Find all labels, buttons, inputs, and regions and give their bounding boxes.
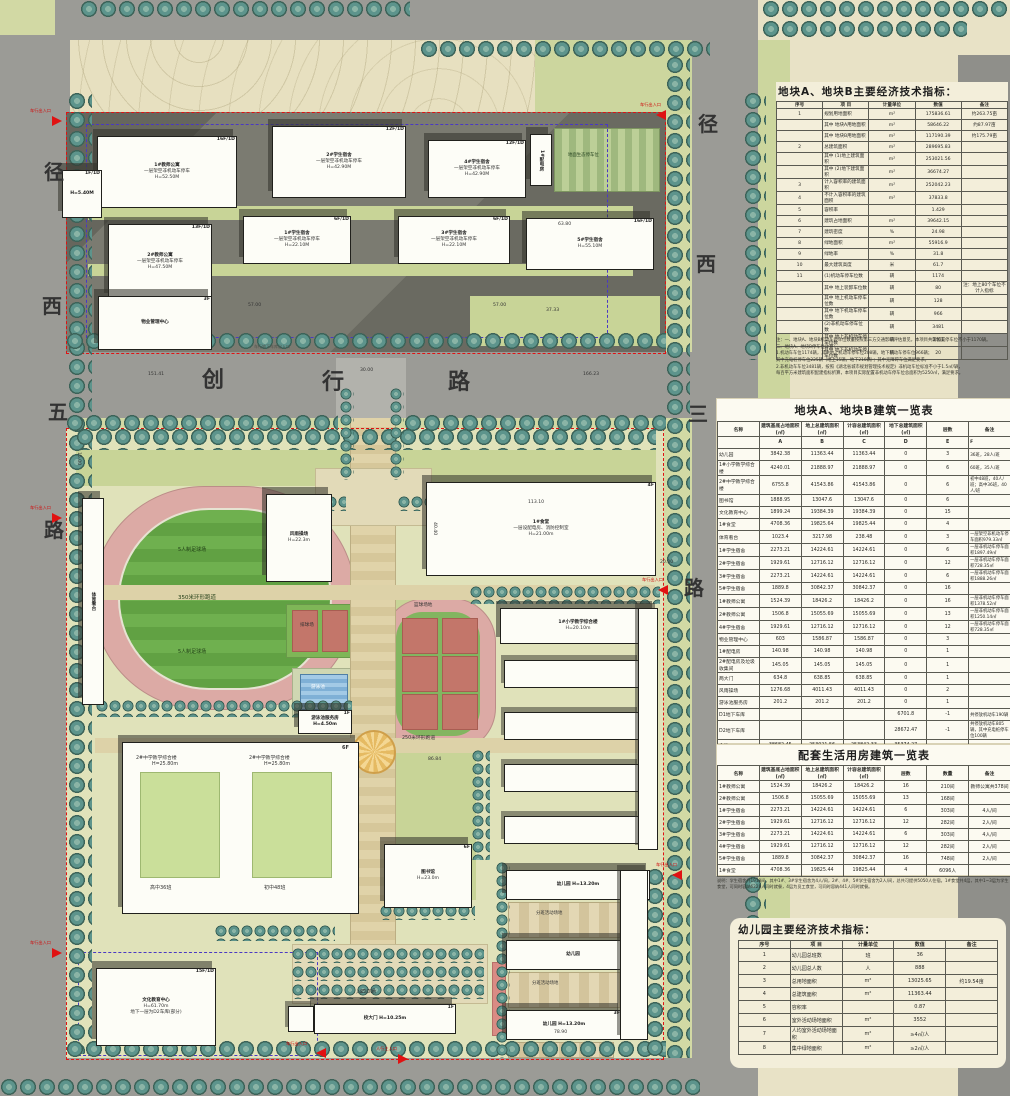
table-row: ABCDEF xyxy=(718,437,1010,449)
map-label: 创 xyxy=(202,362,224,394)
vehicle-entrance-arrow xyxy=(52,513,62,523)
table-cell: 14224.61 xyxy=(801,544,843,557)
map-label: 初中48班 xyxy=(264,884,285,891)
table-cell xyxy=(777,166,823,179)
table-row: 8集中绿地面积m²≥2㎡/人 xyxy=(739,1042,998,1055)
entrance-arrow-label: 车行出入口 xyxy=(30,940,51,946)
table-cell: 30842.37 xyxy=(843,583,885,595)
support-list-table: 名称建筑基底占地面积(㎡)地上总建筑面积(㎡)计容总建筑面积(㎡)层数数量备注1… xyxy=(717,765,1010,877)
table-row: 4不计入容积率的建筑面积m²37833.8 xyxy=(777,192,1008,205)
column-header: 数值 xyxy=(915,102,961,109)
table-cell: 班 xyxy=(842,949,894,962)
building: 5F1#小学教学综合楼H=20.10m xyxy=(500,608,656,644)
column-header: 序号 xyxy=(739,941,791,949)
table-cell xyxy=(801,709,843,721)
table-cell xyxy=(969,865,1010,877)
table-cell: 1 xyxy=(777,109,823,120)
table-cell: 1929.61 xyxy=(759,841,801,853)
table-cell: 米 xyxy=(869,260,915,271)
table-cell xyxy=(718,437,760,449)
table-cell: 252042.23 xyxy=(915,179,961,192)
table-cell: 12716.12 xyxy=(843,817,885,829)
table-cell: 其中 地上装卸车位数 xyxy=(823,282,869,295)
table-cell: 210间 xyxy=(927,781,969,793)
entrance-arrow-label: 人行主入口 xyxy=(376,1046,397,1052)
table-cell: 289695.83 xyxy=(915,142,961,153)
table-cell: 其中 地上机动车停车位数 xyxy=(823,295,869,308)
table-cell: 两大门 xyxy=(718,673,760,685)
table-cell: 集中绿地面积 xyxy=(790,1042,842,1055)
table-cell: 一层架空非机动车停车面积979.33㎡ xyxy=(969,531,1010,544)
table-cell: 其中 (2)地下建筑面积 xyxy=(823,166,869,179)
table-cell: 其中 地块B用地面积 xyxy=(823,131,869,142)
table-cell: 4708.36 xyxy=(759,519,801,531)
table-row: 游泳池服务房201.2201.2201.201 xyxy=(718,697,1010,709)
table-cell: 638.85 xyxy=(801,673,843,685)
table-row: 6建筑占地面积m²39642.15 xyxy=(777,216,1008,227)
table-row: 2#配电房及垃圾收集间145.05145.05145.0501 xyxy=(718,658,1010,673)
table-cell: 11 xyxy=(777,271,823,282)
table-cell: 其中 地块A用地面积 xyxy=(823,120,869,131)
table-cell: 4240.01 xyxy=(759,461,801,476)
west-road-jingxi-5 xyxy=(0,35,70,1096)
dimension-label: 15.00 xyxy=(76,452,81,465)
table-cell: 1#配电房 xyxy=(718,646,760,658)
building: 16F/1D1#教师公寓一层架空非机动车停车H=52.50M xyxy=(97,136,237,208)
table-row: 1#食堂4708.3619825.6419825.4404 xyxy=(718,519,1010,531)
table-cell: 140.98 xyxy=(843,646,885,658)
table-cell: 145.05 xyxy=(801,658,843,673)
table-row: 1#学生宿舍2273.2114224.6114224.6106一层非机动车停车面… xyxy=(718,544,1010,557)
table-row: 物业管理中心6031586.871586.8703 xyxy=(718,634,1010,646)
table-cell: 13047.6 xyxy=(843,495,885,507)
data-table: 序号项 目计量单位数值备注1幼儿园总班数班362幼儿园总人数人8883总用地面积… xyxy=(738,940,998,1055)
tree-row xyxy=(666,56,690,1058)
table-cell: 6096人 xyxy=(927,865,969,877)
table-cell xyxy=(777,131,823,142)
table-cell: 2#中学教学综合楼 xyxy=(718,476,760,495)
table-cell: 4 xyxy=(739,988,791,1001)
table-cell xyxy=(946,1027,998,1042)
table-cell: 19825.44 xyxy=(843,519,885,531)
basketball-court xyxy=(442,656,478,692)
table-cell: 11363.44 xyxy=(843,449,885,461)
table-cell: 0 xyxy=(885,544,927,557)
table-cell: D xyxy=(885,437,927,449)
table-cell xyxy=(961,216,1007,227)
table-cell: 体育看台 xyxy=(718,531,760,544)
table-cell: 辆 xyxy=(869,295,915,308)
table-cell: 8 xyxy=(777,238,823,249)
table-cell: 16 xyxy=(927,595,969,608)
building-list-table: 名称建筑基底占地面积(㎡)地上总建筑面积(㎡)计容总建筑面积(㎡)地下总建筑面积… xyxy=(717,421,1010,752)
table-cell: 36674.27 xyxy=(915,166,961,179)
table-cell xyxy=(961,153,1007,166)
table-cell xyxy=(777,295,823,308)
map-label: 地面生态停车位 xyxy=(568,152,599,158)
table-cell: 12 xyxy=(927,557,969,570)
table-cell: 13 xyxy=(927,608,969,621)
table-cell: 室外活动场地面积 xyxy=(790,1014,842,1027)
table-cell: 0 xyxy=(885,461,927,476)
column-header: 计容总建筑面积(㎡) xyxy=(843,766,885,781)
entrance-arrow-label: 车行出入口 xyxy=(640,102,661,108)
building: 体育看台 xyxy=(82,498,104,705)
vehicle-entrance-arrow xyxy=(52,948,62,958)
table-cell: 0 xyxy=(885,673,927,685)
dimension-label: 85.00 xyxy=(360,990,373,995)
column-header: 地下总建筑面积(㎡) xyxy=(885,422,927,437)
table-cell: 1276.68 xyxy=(759,685,801,697)
table-cell: 14224.61 xyxy=(843,570,885,583)
table-cell: 12 xyxy=(927,621,969,634)
table-cell: 1 xyxy=(739,949,791,962)
table-cell: 1586.87 xyxy=(801,634,843,646)
table-cell: 634.8 xyxy=(759,673,801,685)
table-cell xyxy=(969,583,1010,595)
table-cell: A xyxy=(759,437,801,449)
table-cell: 16 xyxy=(885,781,927,793)
building-label: H=20.10m xyxy=(566,626,591,632)
table-row: 11(1)机动车停车位数辆1174 xyxy=(777,271,1008,282)
map-label: 350米环形跑道 xyxy=(178,593,216,601)
building: 16F/1D5#学生宿舍H=55.10M xyxy=(526,218,654,270)
table-cell: 145.05 xyxy=(759,658,801,673)
table-cell: 1.429 xyxy=(915,205,961,216)
table-cell: 辆 xyxy=(869,321,915,334)
column-header: 地上总建筑面积(㎡) xyxy=(801,766,843,781)
table-row: 序号项 目计量单位数值备注 xyxy=(777,102,1008,109)
table-row: 序号项 目计量单位数值备注 xyxy=(739,941,998,949)
table-cell: 0 xyxy=(885,476,927,495)
entrance-arrow-label: 车行出入口 xyxy=(30,108,51,114)
map-label: 游泳池 xyxy=(311,684,325,690)
table-row: D1地下车库6701.8-1共停放机动车190辆 xyxy=(718,709,1010,721)
tree-row xyxy=(215,925,335,941)
pedestrian-entrance-arrow xyxy=(398,1054,408,1064)
table-cell: 30842.37 xyxy=(843,853,885,865)
table-row: 4#学生宿舍1929.6112716.1212716.12012一层非机动车停车… xyxy=(718,621,1010,634)
table-cell: 145.05 xyxy=(843,658,885,673)
building-label: H=5.40M xyxy=(70,191,94,197)
entrance-arrow-label: 车行出入口 xyxy=(642,577,663,583)
table-cell xyxy=(946,1042,998,1055)
table-cell xyxy=(969,507,1010,519)
table-cell: 6 xyxy=(927,461,969,476)
map-label: 径 xyxy=(44,156,64,185)
table-cell: 14224.61 xyxy=(843,829,885,841)
building-floors-tag: 6F/1D xyxy=(334,217,349,223)
table-row: 3总用地面积m²13025.65约19.54亩 xyxy=(739,975,998,988)
table-cell: F xyxy=(969,437,1010,449)
table-cell: 2#学生宿舍 xyxy=(718,557,760,570)
table-cell: 13047.6 xyxy=(801,495,843,507)
table-cell: 1#食堂 xyxy=(718,519,760,531)
table-row: 其中 (2)地下建筑面积m²36674.27 xyxy=(777,166,1008,179)
table-cell: 其中 地下机动车停车位数 xyxy=(823,308,869,321)
table-cell xyxy=(961,227,1007,238)
table-row: 名称建筑基底占地面积(㎡)地上总建筑面积(㎡)计容总建筑面积(㎡)层数数量备注 xyxy=(718,766,1010,781)
table-row: (2)非机动车停车位数辆3481 xyxy=(777,321,1008,334)
column-header: 建筑基底占地面积(㎡) xyxy=(759,422,801,437)
kindergarten-table: 序号项 目计量单位数值备注1幼儿园总班数班362幼儿园总人数人8883总用地面积… xyxy=(738,940,998,1055)
building xyxy=(504,712,640,740)
table-cell: 绿地率 xyxy=(823,249,869,260)
table-row: 2总建筑面积m²289695.83 xyxy=(777,142,1008,153)
tree-row xyxy=(340,388,354,480)
table-row: 1#配电房140.98140.98140.9801 xyxy=(718,646,1010,658)
tree-row xyxy=(472,750,490,860)
table-cell: 140.98 xyxy=(759,646,801,658)
table-cell: 最大建筑高度 xyxy=(823,260,869,271)
table-cell: 总建筑面积 xyxy=(790,988,842,1001)
table-cell: 5 xyxy=(739,1001,791,1014)
vehicle-entrance-arrow xyxy=(52,116,62,126)
table-cell: 2 xyxy=(739,962,791,975)
table-cell: 规划用地面积 xyxy=(823,109,869,120)
building-label: H=23.0m xyxy=(417,876,439,882)
table-cell: 21888.97 xyxy=(843,461,885,476)
tree-row xyxy=(762,20,967,40)
map-label: H=25.80m xyxy=(264,762,290,767)
building-floors-tag: 3F xyxy=(204,297,210,303)
table-cell: m² xyxy=(869,192,915,205)
table-cell: 一层非机动车停车面积1250.14㎡ xyxy=(969,608,1010,621)
table-cell: 1#小学教学综合楼 xyxy=(718,461,760,476)
table-cell: 140.98 xyxy=(801,646,843,658)
table-cell: 282间 xyxy=(927,841,969,853)
entrance-arrow-label: 车行出入口 xyxy=(30,505,51,511)
kindergarten-panel: 幼儿园主要经济技术指标： 序号项 目计量单位数值备注1幼儿园总班数班362幼儿园… xyxy=(730,918,1006,1068)
building: 6F图书馆H=23.0m xyxy=(384,844,472,908)
table-row: 1#教师公寓1524.3918426.218426.216210间教师公寓共37… xyxy=(718,781,1010,793)
table-cell: 201.2 xyxy=(759,697,801,709)
table-row: 名称建筑基底占地面积(㎡)地上总建筑面积(㎡)计容总建筑面积(㎡)地下总建筑面积… xyxy=(718,422,1010,437)
table-cell: (1)机动车停车位数 xyxy=(823,271,869,282)
table-row: 3#学生宿舍2273.2114224.6114224.6106一层非机动车停车面… xyxy=(718,570,1010,583)
table-cell: 2#教师公寓 xyxy=(718,793,760,805)
table-cell: 3552 xyxy=(894,1014,946,1027)
table-cell: 其中 (1)地上建筑面积 xyxy=(823,153,869,166)
table-cell: 风雨操场 xyxy=(718,685,760,697)
table-cell: 一层非机动车停车面积1888.26㎡ xyxy=(969,570,1010,583)
table-cell: % xyxy=(869,249,915,260)
building: 风雨操场H=22.3m xyxy=(266,494,332,582)
table-cell: 0 xyxy=(885,685,927,697)
table-cell: 748间 xyxy=(927,853,969,865)
table-cell: 0 xyxy=(885,570,927,583)
table-cell: 4 xyxy=(927,519,969,531)
table-cell: 4人/间 xyxy=(969,829,1010,841)
table-cell: 201.2 xyxy=(801,697,843,709)
table-cell: 16 xyxy=(927,583,969,595)
table-cell: m² xyxy=(869,109,915,120)
building-floors-tag: 1F xyxy=(344,711,350,717)
table-row: 2幼儿园总人数人888 xyxy=(739,962,998,975)
table-cell: m² xyxy=(869,120,915,131)
map-label: 250米环形跑道 xyxy=(402,734,435,741)
building: 13F/1D2#教师公寓一层架空非机动车停车H=47.50M xyxy=(108,224,212,300)
table-cell xyxy=(759,709,801,721)
column-header: 序号 xyxy=(777,102,823,109)
table-cell: 幼儿园 xyxy=(718,449,760,461)
column-header: 名称 xyxy=(718,422,760,437)
map-label: 五 xyxy=(48,396,68,425)
table-cell: 1889.8 xyxy=(759,583,801,595)
table-cell: 建筑占地面积 xyxy=(823,216,869,227)
table-cell: 6701.8 xyxy=(885,709,927,721)
table-cell: 28672.47 xyxy=(885,721,927,740)
table-cell: 容积率 xyxy=(790,1001,842,1014)
map-label: 西 xyxy=(42,290,62,319)
building-label: H=21.00m xyxy=(529,532,554,538)
table-row: 其中 地块A用地面积m²58646.22约87.97亩 xyxy=(777,120,1008,131)
table-cell: 辆 xyxy=(869,282,915,295)
column-header: 计量单位 xyxy=(842,941,894,949)
table-cell xyxy=(777,153,823,166)
building-label: 1#配电房 xyxy=(538,150,544,171)
table-cell: 0 xyxy=(885,697,927,709)
table-cell xyxy=(777,120,823,131)
table-cell: 15055.69 xyxy=(843,793,885,805)
table-cell: 总建筑面积 xyxy=(823,142,869,153)
map-label: 2#中学教学综合楼 xyxy=(136,754,177,761)
table-cell: 18426.2 xyxy=(801,595,843,608)
table-cell: 37833.8 xyxy=(915,192,961,205)
table-cell: 638.85 xyxy=(843,673,885,685)
table-cell: 1506.8 xyxy=(759,608,801,621)
table-cell: 4#学生宿舍 xyxy=(718,621,760,634)
building: 12F/1D4#学生宿舍一层架空非机动车停车H=42.90M xyxy=(428,140,526,198)
table-cell xyxy=(969,685,1010,697)
table-cell xyxy=(961,192,1007,205)
building-label: 游泳池服务房 H=4.50m xyxy=(299,716,351,728)
table-row: D2地下车库28672.47-1共停放机动车805辆，其中充电桩停车位100辆 xyxy=(718,721,1010,740)
table-cell xyxy=(961,238,1007,249)
table-cell xyxy=(946,1001,998,1014)
map-label: 5人制足球场 xyxy=(178,648,206,655)
table-row: 1#小学教学综合楼4240.0121888.9721888.970660班，35… xyxy=(718,461,1010,476)
table-cell: m² xyxy=(869,238,915,249)
building xyxy=(504,816,640,844)
table-cell: m² xyxy=(842,1027,894,1042)
table-cell xyxy=(777,282,823,295)
table-cell: 58646.22 xyxy=(915,120,961,131)
table-cell: 10 xyxy=(777,260,823,271)
table-cell: 238.48 xyxy=(843,531,885,544)
table-row: 其中 地下机动车停车位数辆966 xyxy=(777,308,1008,321)
column-header: 数值 xyxy=(894,941,946,949)
table-cell: -1 xyxy=(927,721,969,740)
table-cell: 14224.61 xyxy=(843,544,885,557)
table-cell: 文化教育中心 xyxy=(718,507,760,519)
table-cell: 辆 xyxy=(869,308,915,321)
table-row: 2#学生宿舍1929.6112716.1212716.1212282间2人/间 xyxy=(718,817,1010,829)
table-cell xyxy=(946,1014,998,1027)
dimension-label: 40.40 xyxy=(432,522,437,535)
tree-row xyxy=(292,966,484,981)
table-cell xyxy=(946,988,998,1001)
table-cell: 30842.37 xyxy=(801,853,843,865)
building-label: H=22.3m xyxy=(288,538,310,544)
table-cell: 1#食堂 xyxy=(718,865,760,877)
table-cell: m² xyxy=(869,216,915,227)
table-cell: 0 xyxy=(885,658,927,673)
table-cell: 幼儿园总人数 xyxy=(790,962,842,975)
table-cell: 2273.21 xyxy=(759,805,801,817)
building-label: 幼儿园 H=13.20m xyxy=(557,882,599,888)
table-cell: 0 xyxy=(885,557,927,570)
table-cell: 13 xyxy=(885,793,927,805)
basketball-court xyxy=(402,618,438,654)
table-cell: 3 xyxy=(927,634,969,646)
table-cell: 603 xyxy=(759,634,801,646)
table-cell: 3#学生宿舍 xyxy=(718,829,760,841)
table-cell: 888 xyxy=(894,962,946,975)
building-label: H=42.90M xyxy=(465,172,489,178)
building-label: 校大门 H=10.25m xyxy=(364,1016,406,1022)
table-cell: 1506.8 xyxy=(759,793,801,805)
map-label: 5人制足球场 xyxy=(178,546,206,553)
table-row: 风雨操场1276.684011.434011.4302 xyxy=(718,685,1010,697)
basketball-court xyxy=(402,694,438,730)
table-cell: ≥2㎡/人 xyxy=(894,1042,946,1055)
building-label: H=42.90M xyxy=(327,165,351,171)
column-header: 备注 xyxy=(969,766,1010,781)
table-cell: 2人/间 xyxy=(969,841,1010,853)
table-row: 10最大建筑高度米61.7 xyxy=(777,260,1008,271)
column-header: 计容总建筑面积(㎡) xyxy=(843,422,885,437)
dimension-label: 57.00 xyxy=(493,303,506,308)
table-cell: 168间 xyxy=(927,793,969,805)
table-cell: 5 xyxy=(777,205,823,216)
indicators-panel: 地块A、地块B主要经济技术指标： 序号项 目计量单位数值备注1规划用地面积m²1… xyxy=(776,82,1008,334)
table-cell: 0 xyxy=(885,583,927,595)
table-row: 幼儿园3842.3811363.4411363.440336班，28人/班 xyxy=(718,449,1010,461)
table-cell: 4#学生宿舍 xyxy=(718,841,760,853)
table-cell: 7 xyxy=(777,227,823,238)
table-cell: 13025.65 xyxy=(894,975,946,988)
dimension-label: 86.84 xyxy=(428,757,441,762)
table-cell xyxy=(969,646,1010,658)
table-cell: 一层非机动车停车面积728.35㎡ xyxy=(969,621,1010,634)
column-header: 建筑基底占地面积(㎡) xyxy=(759,766,801,781)
table-cell: 3 xyxy=(739,975,791,988)
table-cell xyxy=(842,1001,894,1014)
table-cell: 128 xyxy=(915,295,961,308)
table-row: 1#学生宿舍2273.2114224.6114224.616303间4人/间 xyxy=(718,805,1010,817)
table-cell xyxy=(759,721,801,740)
building-floors-tag: 1F xyxy=(448,1005,454,1011)
table-cell: 1524.39 xyxy=(759,781,801,793)
map-label: H=25.80m xyxy=(152,762,178,767)
table-row: 其中 (1)地上建筑面积m²253021.56 xyxy=(777,153,1008,166)
building-label: H=47.50M xyxy=(148,265,172,271)
table-cell: 约263.75亩 xyxy=(961,109,1007,120)
building-floors-tag: 6F/1D xyxy=(493,217,508,223)
building-floors-tag: 12F/1D xyxy=(506,141,524,147)
table-row: 其中 地块B用地面积m²117190.39约175.79亩 xyxy=(777,131,1008,142)
table-cell: 人均室外活动场地面积 xyxy=(790,1027,842,1042)
table-cell: 36班，28人/班 xyxy=(969,449,1010,461)
surface-parking xyxy=(554,128,660,192)
table-cell: 2 xyxy=(927,685,969,697)
table-cell: B xyxy=(801,437,843,449)
table-row: 7建筑密度%24.98 xyxy=(777,227,1008,238)
table-cell: 0 xyxy=(885,519,927,531)
table-cell: 15055.69 xyxy=(843,608,885,621)
map-label: 2#中学教学综合楼 xyxy=(249,754,290,761)
